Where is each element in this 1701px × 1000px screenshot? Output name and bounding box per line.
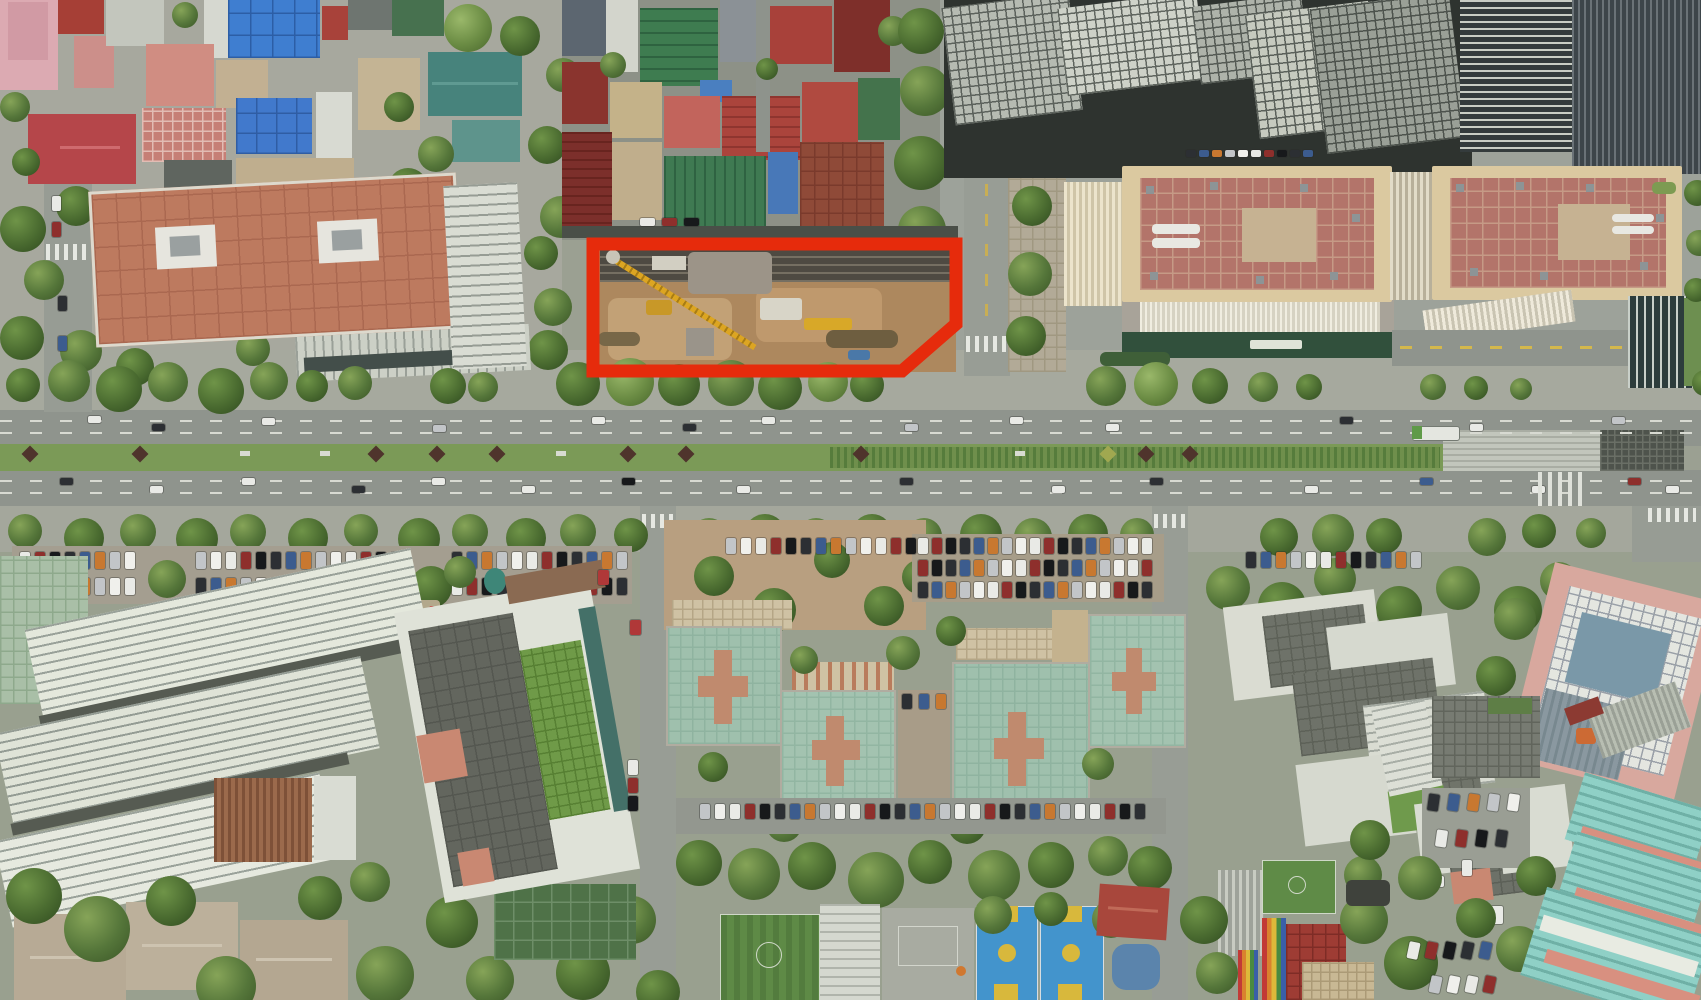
roof-patch-salmon xyxy=(416,729,468,784)
tree xyxy=(528,126,566,164)
court-lines xyxy=(898,926,958,966)
apartment-roof-terracotta xyxy=(88,172,464,347)
parked-cars-row xyxy=(95,552,105,569)
parked-cars-row xyxy=(988,560,998,576)
parked-cars-sideroad xyxy=(52,222,61,237)
hvac-unit xyxy=(1516,182,1524,190)
motorbike-cluster xyxy=(1346,880,1390,906)
complex-parking-cars xyxy=(1264,150,1274,157)
roof-blue-tarp-c xyxy=(768,152,798,214)
parked-cars-row xyxy=(1058,560,1068,576)
complex-parking-cars xyxy=(1277,150,1287,157)
cross-core-h xyxy=(1112,672,1156,691)
tree xyxy=(528,330,568,370)
tree xyxy=(148,560,186,598)
parked-cars-row xyxy=(730,804,740,819)
tree xyxy=(452,514,488,550)
parked-cars-row xyxy=(786,538,796,554)
site-puddle xyxy=(826,330,898,348)
parked-cars-row xyxy=(602,552,612,569)
tree xyxy=(698,752,728,782)
tree xyxy=(900,66,950,116)
parked-cars-row xyxy=(1045,804,1055,819)
tree xyxy=(1192,368,1228,404)
parked-cars-row xyxy=(110,552,120,569)
school-roof-white xyxy=(820,904,880,1000)
parked-cars-row xyxy=(1044,538,1054,554)
building-dark xyxy=(348,0,392,30)
tree xyxy=(1196,952,1238,994)
tree xyxy=(338,366,372,400)
parked-cars-row xyxy=(1507,793,1520,811)
parked-cars-row xyxy=(876,538,886,554)
car xyxy=(60,478,73,485)
complex-parking-cars xyxy=(1290,150,1300,157)
hvac-unit xyxy=(1150,272,1158,280)
excavator xyxy=(646,300,672,315)
complex-parking-cars xyxy=(1303,150,1313,157)
parked-cars-row xyxy=(1128,560,1138,576)
parked-cars-row xyxy=(1058,582,1068,598)
roof-red-tiny xyxy=(322,6,348,40)
parked-cars-row xyxy=(1086,560,1096,576)
crosswalk-top-right xyxy=(966,336,1008,352)
tree xyxy=(64,896,130,962)
tree xyxy=(1012,186,1052,226)
parked-cars-row xyxy=(988,582,998,598)
rooftop-unit-dark-w xyxy=(169,235,200,257)
parked-cars-col xyxy=(628,778,638,793)
tree xyxy=(350,862,390,902)
roof-red-a xyxy=(770,6,832,64)
parked-cars-row xyxy=(1135,804,1145,819)
parked-cars-row xyxy=(1276,552,1286,568)
tower-a-tank xyxy=(1152,238,1200,248)
rooftop-unit-dark-e xyxy=(331,229,362,251)
roof-salmon-mid xyxy=(664,96,720,148)
tree xyxy=(708,360,754,406)
parked-cars-row xyxy=(946,582,956,598)
parked-cars-row xyxy=(1128,538,1138,554)
building-tan-small xyxy=(1052,610,1088,662)
tree xyxy=(48,360,90,402)
parked-cars-row xyxy=(846,538,856,554)
site-shed xyxy=(652,256,686,270)
building-white-mid xyxy=(316,92,352,160)
parked-cars-row xyxy=(1015,804,1025,819)
parked-cars-row xyxy=(1072,538,1082,554)
tree xyxy=(0,92,30,122)
roof-darkred-rows xyxy=(562,132,612,228)
tree xyxy=(296,370,328,402)
parked-cars-row xyxy=(1261,552,1271,568)
parked-cars-row xyxy=(1072,582,1082,598)
parked-cars-row xyxy=(1030,538,1040,554)
building-rainbow xyxy=(1262,918,1286,1000)
roof-beige-b xyxy=(612,142,662,220)
roof-beige-a xyxy=(610,82,662,138)
truck-crane xyxy=(804,318,852,330)
tower-b-tank xyxy=(1612,214,1654,222)
parked-cars-row xyxy=(1044,582,1054,598)
tree xyxy=(1350,820,1390,860)
tree xyxy=(1034,892,1068,926)
parked-cars-row xyxy=(932,560,942,576)
site-gravel xyxy=(688,252,772,294)
hvac-unit xyxy=(1146,186,1154,194)
parked-cars-row xyxy=(1086,538,1096,554)
parked-cars-row xyxy=(1030,560,1040,576)
tree xyxy=(848,852,904,908)
court-center xyxy=(998,944,1016,962)
parked-cars-row xyxy=(1002,582,1012,598)
parked-cars-row xyxy=(715,804,725,819)
parked-cars-row xyxy=(1495,829,1508,847)
tree xyxy=(974,896,1012,934)
tree xyxy=(790,646,818,674)
parked-cars-row xyxy=(1075,804,1085,819)
tree xyxy=(1128,846,1172,890)
parked-cars-row xyxy=(1114,560,1124,576)
site-tarp-blue xyxy=(848,350,870,360)
tree xyxy=(1260,518,1298,556)
roof-patch-salmon xyxy=(457,847,494,886)
parked-cars-row xyxy=(542,552,552,569)
parked-cars-row xyxy=(850,804,860,819)
tree xyxy=(1464,376,1488,400)
parked-cars-row xyxy=(918,582,928,598)
parked-cars-row xyxy=(700,804,710,819)
parked-cars-row xyxy=(1396,552,1406,568)
roof-red-small xyxy=(58,0,104,34)
tower-b-fins xyxy=(1390,172,1432,300)
water-tank xyxy=(484,568,506,594)
hvac-unit xyxy=(1640,262,1648,270)
parked-cars-row xyxy=(970,804,980,819)
complex-parking-cars xyxy=(1199,150,1209,157)
tree xyxy=(894,136,948,190)
roof-blue-tarp-b xyxy=(236,98,312,154)
median-bench xyxy=(556,451,566,456)
crosswalk-mid-right xyxy=(1154,514,1186,528)
tree xyxy=(1180,896,1228,944)
crosswalk-left xyxy=(46,244,90,260)
metro-station-grate xyxy=(1600,430,1684,471)
parked-cars-row xyxy=(1114,582,1124,598)
tree xyxy=(898,8,944,54)
car xyxy=(592,417,605,424)
parked-cars-row xyxy=(831,538,841,554)
hvac-unit xyxy=(1540,272,1548,280)
tree xyxy=(1086,366,1126,406)
car xyxy=(1010,417,1023,424)
parked-cars-row xyxy=(1090,804,1100,819)
tree xyxy=(1476,656,1516,696)
roof-slate xyxy=(562,0,606,56)
tree xyxy=(1088,836,1128,876)
tree xyxy=(1008,252,1052,296)
tree xyxy=(1510,378,1532,400)
tree xyxy=(344,514,378,548)
parked-cars-row xyxy=(816,538,826,554)
parked-cars-row xyxy=(1120,804,1130,819)
median-bench xyxy=(320,451,330,456)
car xyxy=(522,486,535,493)
car xyxy=(905,424,918,431)
canopy-sign xyxy=(1250,340,1302,349)
car xyxy=(1420,478,1433,485)
parked-cars-row xyxy=(1114,538,1124,554)
roof-green-b xyxy=(858,78,900,140)
tree xyxy=(12,148,40,176)
tarp-blue-play xyxy=(1112,944,1160,990)
tree xyxy=(600,52,626,78)
lane-dashes xyxy=(0,420,1701,422)
car-red xyxy=(630,620,641,635)
parked-cars-row xyxy=(527,552,537,569)
tree xyxy=(676,840,722,886)
tree xyxy=(1296,374,1322,400)
car xyxy=(737,486,750,493)
tree xyxy=(0,316,44,360)
parked-cars-row xyxy=(1016,582,1026,598)
parked-cars-row xyxy=(1447,793,1460,811)
parked-cars-row xyxy=(125,578,135,595)
parked-cars-row xyxy=(1306,552,1316,568)
parked-cars-row xyxy=(974,582,984,598)
parked-cars-row xyxy=(110,578,120,595)
tree xyxy=(788,842,836,890)
parked-cars-row xyxy=(1000,804,1010,819)
tree xyxy=(524,236,558,270)
parked-cars-row xyxy=(1142,538,1152,554)
tree xyxy=(356,946,414,1000)
parked-cars-row xyxy=(196,552,206,569)
tree xyxy=(468,372,498,402)
parked-cars-row xyxy=(271,552,281,569)
hvac-unit xyxy=(1330,272,1338,280)
vans-frontage xyxy=(662,218,677,226)
metro-station-roof xyxy=(1443,430,1603,471)
tree xyxy=(758,366,802,410)
palm-cluster xyxy=(694,556,734,596)
tree xyxy=(1456,898,1496,938)
parked-cars-row xyxy=(1366,552,1376,568)
tree xyxy=(500,16,540,56)
roof-pink-inner xyxy=(8,2,48,60)
roof-crimson-ridge xyxy=(60,146,120,149)
court-center xyxy=(1062,944,1080,962)
car xyxy=(762,417,775,424)
complex-parking-cars xyxy=(1225,150,1235,157)
parked-cars-row xyxy=(960,538,970,554)
parked-cars-row xyxy=(790,804,800,819)
parked-cars-row xyxy=(861,538,871,554)
parked-cars-row xyxy=(1321,552,1331,568)
parked-cars-sideroad xyxy=(52,196,61,211)
tree xyxy=(1082,748,1114,780)
parked-cars-row xyxy=(880,804,890,819)
parked-cars-row xyxy=(1291,552,1301,568)
car xyxy=(152,424,165,431)
hvac-unit xyxy=(1586,184,1594,192)
highrise-slab-2 xyxy=(1057,0,1207,96)
complex-parking-cars xyxy=(1251,150,1261,157)
cross-core-h xyxy=(698,676,748,697)
bus-front xyxy=(1412,426,1422,439)
tree xyxy=(172,2,198,28)
parked-cars-row xyxy=(985,804,995,819)
hvac-unit xyxy=(1656,214,1664,222)
tree xyxy=(426,896,478,948)
tower-a-tank xyxy=(1152,224,1200,234)
site-tent xyxy=(760,298,802,320)
median-shrub-rows xyxy=(830,447,1440,468)
parked-cars-row xyxy=(1016,560,1026,576)
tower-b-tank xyxy=(1612,226,1654,234)
tree xyxy=(1028,842,1074,888)
parked-cars-row xyxy=(1016,538,1026,554)
tree xyxy=(556,362,600,406)
roof-hip-ridge xyxy=(256,958,332,961)
tree xyxy=(444,4,492,52)
palm-cluster xyxy=(864,586,904,626)
site-puddle-2 xyxy=(598,332,640,346)
parked-cars-row xyxy=(241,552,251,569)
tree xyxy=(230,514,266,550)
tree xyxy=(444,556,476,588)
tree xyxy=(24,260,64,300)
car xyxy=(1470,424,1483,431)
tree xyxy=(120,514,156,550)
crane-base xyxy=(606,250,620,264)
tree xyxy=(6,368,40,402)
parked-cars-row xyxy=(125,552,135,569)
tree xyxy=(418,136,454,172)
car xyxy=(262,418,275,425)
tree xyxy=(6,868,62,924)
roof-teal-light xyxy=(452,120,520,162)
car xyxy=(433,425,446,432)
car xyxy=(1106,424,1119,431)
parked-cars-row xyxy=(775,804,785,819)
car xyxy=(1666,486,1679,493)
parked-cars-row xyxy=(918,538,928,554)
roof-red-b xyxy=(802,82,858,142)
roof-green-small xyxy=(392,0,444,36)
hvac-unit xyxy=(1470,268,1478,276)
tree xyxy=(886,636,920,670)
parked-cars-row xyxy=(1044,560,1054,576)
site-ramp xyxy=(686,328,714,356)
parked-cars-row xyxy=(925,804,935,819)
parked-cars-row xyxy=(497,552,507,569)
parked-cars-row xyxy=(865,804,875,819)
roof-red-school xyxy=(1096,884,1169,941)
parked-cars-row xyxy=(512,552,522,569)
roof-green-big xyxy=(640,8,718,86)
parked-cars-row xyxy=(1100,538,1110,554)
frontage-shadow xyxy=(562,226,958,238)
cross-core-h xyxy=(994,738,1044,759)
complex-parking-cars xyxy=(1212,150,1222,157)
car xyxy=(1052,486,1065,493)
parked-cars-row xyxy=(946,538,956,554)
parked-cars-row xyxy=(726,538,736,554)
parked-cars-row xyxy=(1351,552,1361,568)
parked-cars-row xyxy=(1427,793,1440,811)
parked-cars-row xyxy=(1381,552,1391,568)
parked-cars-row xyxy=(1142,560,1152,576)
parked-cars-row xyxy=(1030,804,1040,819)
highrise-slab-5 xyxy=(1310,0,1467,154)
tree xyxy=(250,362,288,400)
roof-hip-ridge xyxy=(142,944,222,947)
car xyxy=(683,424,696,431)
parked-cars-row xyxy=(895,804,905,819)
parked-cars-row xyxy=(1086,582,1096,598)
cross-core-h xyxy=(812,740,860,760)
tree xyxy=(560,514,596,550)
tree xyxy=(146,876,196,926)
parked-cars-row xyxy=(960,560,970,576)
parked-cars-row xyxy=(1467,793,1480,811)
parked-cars-row xyxy=(910,804,920,819)
parked-cars-col xyxy=(628,796,638,811)
parked-cars-row xyxy=(902,694,912,709)
tree xyxy=(1684,278,1701,302)
parked-cars-row xyxy=(617,578,627,595)
roof-green-tin xyxy=(664,156,766,230)
hvac-unit xyxy=(1352,214,1360,222)
parked-cars-row xyxy=(932,538,942,554)
roof-blue-tarp-a xyxy=(228,0,320,58)
tree xyxy=(1398,856,1442,900)
tower-a-core xyxy=(1242,208,1316,262)
hvac-unit xyxy=(1300,184,1308,192)
parked-cars-row xyxy=(940,804,950,819)
tree xyxy=(1420,374,1446,400)
car xyxy=(1340,417,1353,424)
parked-cars-row xyxy=(1246,552,1256,568)
aerial-photo-stage xyxy=(0,0,1701,1000)
parked-cars-row xyxy=(1030,582,1040,598)
parked-cars-row xyxy=(835,804,845,819)
car xyxy=(1305,486,1318,493)
roof-teal-ridge xyxy=(432,82,518,85)
dot-orange xyxy=(956,966,966,976)
parked-cars-row xyxy=(1128,582,1138,598)
parked-cars-row xyxy=(918,560,928,576)
car xyxy=(1628,478,1641,485)
car xyxy=(88,416,101,423)
roof-brown-big xyxy=(800,142,884,228)
parked-cars-row xyxy=(1100,582,1110,598)
parked-cars-row xyxy=(988,538,998,554)
parked-cars-row xyxy=(974,560,984,576)
car xyxy=(352,486,365,493)
tree xyxy=(1468,518,1506,556)
parked-cars-row xyxy=(95,578,105,595)
tree xyxy=(298,876,342,920)
parked-cars-row xyxy=(226,552,236,569)
parked-cars-row xyxy=(1455,829,1468,847)
parked-cars-row xyxy=(1100,560,1110,576)
parked-cars-row xyxy=(286,552,296,569)
tree xyxy=(1576,518,1606,548)
tower-a-fins xyxy=(1064,182,1122,306)
apartment-wing-white xyxy=(443,182,527,370)
